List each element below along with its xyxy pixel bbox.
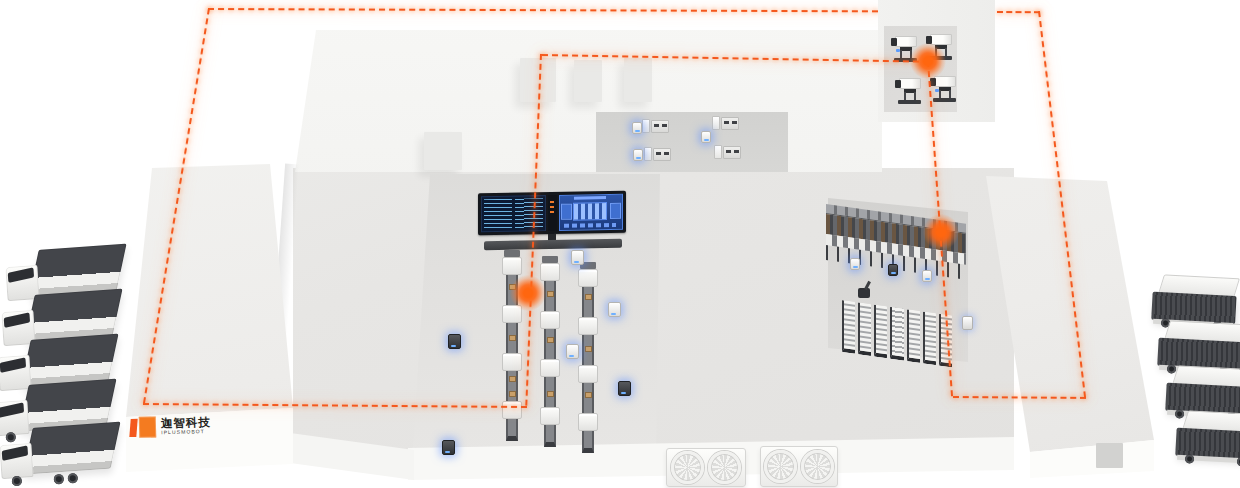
workstation-machine <box>644 146 671 162</box>
dashboard-stats-panel <box>559 194 623 231</box>
logo-mark-bar <box>129 419 137 437</box>
agv-robot <box>448 334 461 349</box>
agv-robot <box>701 131 711 143</box>
roof-vent <box>424 132 462 170</box>
logo-company-name-en: IPLUSMOBOT <box>161 429 211 435</box>
robot-arm <box>858 288 870 298</box>
truck-windshield <box>8 267 34 282</box>
cnc-machine <box>930 76 960 103</box>
status-light <box>896 49 900 52</box>
agv-route-segment-top-east <box>997 11 1040 13</box>
fan-icon <box>708 451 741 484</box>
dashboard-counter-display <box>574 203 606 220</box>
agv-robot <box>632 122 642 134</box>
agv-robot <box>571 250 584 265</box>
line-machine <box>502 257 522 275</box>
agv-robot <box>566 344 579 359</box>
dashboard-panel-title-bar <box>574 196 606 200</box>
trailer-truck <box>1174 410 1240 475</box>
agv-robot <box>850 258 860 270</box>
agv-robot <box>618 381 631 396</box>
workstation-machine <box>712 115 739 131</box>
workstation-machine <box>714 144 741 160</box>
agv-robot <box>442 440 455 455</box>
dock-fan-unit <box>760 446 838 487</box>
dashboard-table-column <box>484 199 512 229</box>
logo-mark-icon <box>130 416 157 438</box>
route-marker-dot <box>910 43 946 79</box>
agv-robot <box>633 149 643 161</box>
fan-icon <box>801 450 834 483</box>
truck <box>0 422 122 484</box>
roof-vent <box>624 58 652 102</box>
logo: 迦智科技 IPLUSMOBOT <box>130 415 212 438</box>
agv-robot <box>888 264 898 276</box>
fan-icon <box>671 451 704 484</box>
dock-fan-unit <box>666 448 746 487</box>
monitoring-dashboard <box>478 189 628 252</box>
roof-vent <box>574 60 602 102</box>
agv-robot <box>608 302 621 317</box>
logo-text: 迦智科技 IPLUSMOBOT <box>161 417 211 436</box>
factory-isometric-scene: 迦智科技 IPLUSMOBOT <box>0 0 1240 488</box>
agv-route-segment-top-west <box>208 8 878 12</box>
dashboard-table-column <box>515 198 543 228</box>
dashboard-screen <box>478 191 626 236</box>
route-marker-dot <box>923 214 959 250</box>
agv-robot <box>922 270 932 282</box>
dashboard-base <box>484 239 622 250</box>
machine-head-icon <box>891 38 897 46</box>
dashboard-status-strip <box>548 195 557 231</box>
rack-module <box>842 300 855 354</box>
route-marker-dot <box>510 275 546 311</box>
cnc-machine <box>895 78 925 105</box>
logo-mark-square <box>139 416 157 437</box>
fan-icon <box>764 450 797 483</box>
worker-robot <box>962 316 973 330</box>
workstation-machine <box>642 118 669 134</box>
dashboard-table-panel <box>481 195 546 232</box>
assembly-line <box>578 262 598 453</box>
right-wing-door <box>1096 443 1123 468</box>
